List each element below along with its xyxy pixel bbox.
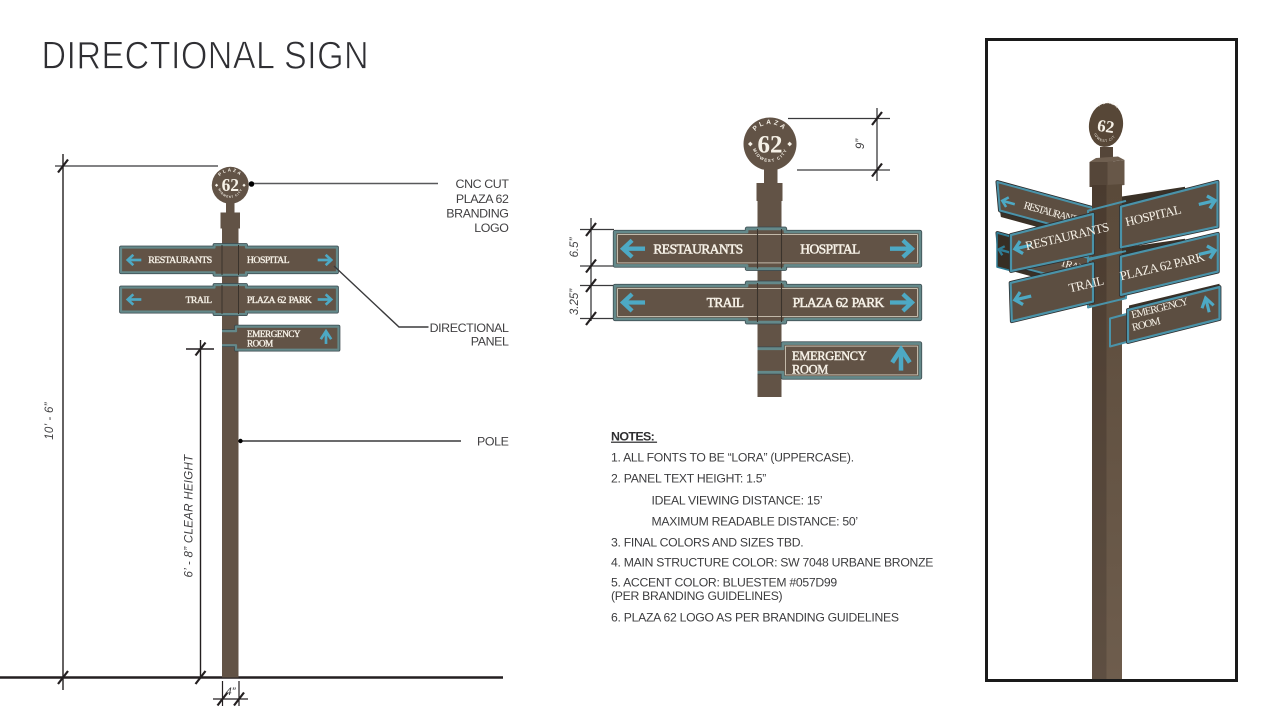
svg-text:PLAZA 62 PARK: PLAZA 62 PARK [247, 295, 312, 306]
svg-text:POLE: POLE [477, 435, 509, 449]
svg-text:DIRECTIONAL SIGN: DIRECTIONAL SIGN [42, 34, 370, 77]
svg-text:4. MAIN STRUCTURE COLOR: SW 70: 4. MAIN STRUCTURE COLOR: SW 7048 URBANE … [611, 556, 933, 570]
svg-text:RESTAURANTS: RESTAURANTS [148, 255, 211, 266]
svg-text:10’ - 6”: 10’ - 6” [44, 401, 56, 439]
svg-text:HOSPITAL: HOSPITAL [800, 241, 860, 256]
svg-text:EMERGENCY: EMERGENCY [247, 329, 301, 339]
svg-text:BRANDING: BRANDING [446, 206, 508, 220]
svg-text:PLAZA 62 PARK: PLAZA 62 PARK [793, 295, 885, 310]
svg-text:DIRECTIONAL: DIRECTIONAL [430, 321, 509, 335]
svg-text:ROOM: ROOM [247, 339, 273, 349]
svg-text:PANEL: PANEL [471, 335, 509, 349]
svg-text:MAXIMUM READABLE DISTANCE: 50’: MAXIMUM READABLE DISTANCE: 50’ [652, 515, 858, 529]
svg-text:9”: 9” [855, 138, 867, 149]
svg-text:3. FINAL COLORS AND SIZES TBD.: 3. FINAL COLORS AND SIZES TBD. [611, 536, 803, 550]
svg-text:6. PLAZA 62 LOGO AS PER BRANDI: 6. PLAZA 62 LOGO AS PER BRANDING GUIDELI… [611, 611, 899, 625]
svg-text:HOSPITAL: HOSPITAL [247, 255, 290, 266]
svg-text:(PER BRANDING GUIDELINES): (PER BRANDING GUIDELINES) [611, 589, 783, 603]
svg-text:3.25”: 3.25” [569, 288, 581, 315]
svg-text:ROOM: ROOM [792, 362, 828, 376]
svg-text:PLAZA 62: PLAZA 62 [456, 192, 509, 206]
svg-text:1. ALL FONTS TO BE “LORA” (UPP: 1. ALL FONTS TO BE “LORA” (UPPERCASE). [611, 450, 854, 464]
svg-text:62: 62 [222, 175, 239, 195]
svg-text:TRAIL: TRAIL [707, 295, 744, 310]
svg-text:6.5”: 6.5” [569, 236, 581, 257]
svg-text:IDEAL VIEWING DISTANCE: 15’: IDEAL VIEWING DISTANCE: 15’ [652, 493, 823, 507]
svg-text:6’ - 8” CLEAR HEIGHT: 6’ - 8” CLEAR HEIGHT [184, 454, 196, 578]
svg-text:TRAIL: TRAIL [185, 295, 212, 306]
svg-text:5. ACCENT COLOR: BLUESTEM #057: 5. ACCENT COLOR: BLUESTEM #057D99 [611, 575, 837, 589]
svg-text:EMERGENCY: EMERGENCY [792, 349, 867, 363]
svg-text:62: 62 [758, 131, 783, 158]
svg-text:RESTAURANTS: RESTAURANTS [653, 241, 742, 256]
svg-text:4”: 4” [226, 686, 237, 698]
svg-text:LOGO: LOGO [474, 221, 509, 235]
svg-text:CNC CUT: CNC CUT [456, 177, 510, 191]
svg-text:62: 62 [1096, 116, 1115, 137]
svg-text:2. PANEL TEXT HEIGHT: 1.5”: 2. PANEL TEXT HEIGHT: 1.5” [611, 472, 766, 486]
svg-text:NOTES:: NOTES: [611, 430, 657, 444]
